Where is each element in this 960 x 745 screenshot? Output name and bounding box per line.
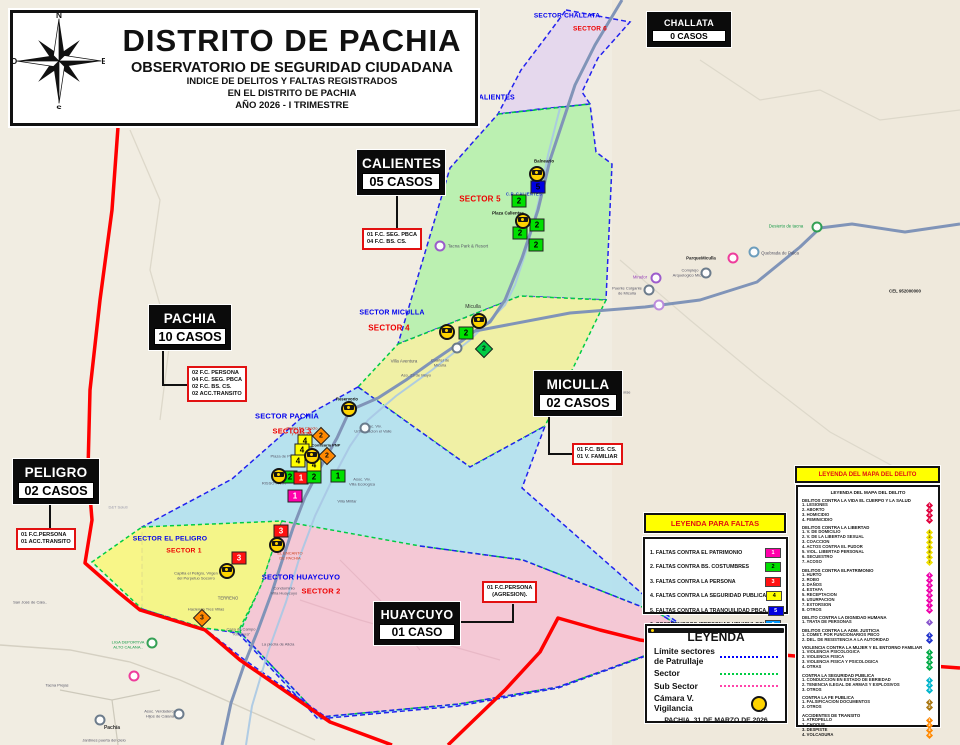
map-label: Pachía: [104, 726, 120, 732]
falta-marker: 2: [307, 471, 322, 484]
legend-main-swatch: [720, 696, 778, 712]
legend-main-swatch: [720, 673, 778, 675]
legend-main-footer: PACHIA, 31 DE MARZO DE 2026: [647, 717, 785, 724]
legend-faltas-label: 3. FALTAS CONTRA LA PERSONA: [650, 579, 736, 585]
legend-line-swatch: [720, 685, 778, 687]
compass-rose: N S E O: [13, 18, 117, 118]
legend-delito-item: 2. OTROS2: [802, 705, 934, 710]
map-label: Casa de Campo "Kiliseera": [227, 627, 256, 636]
area-name: PELIGRO: [18, 464, 94, 482]
delito-marker-number: 2: [316, 431, 327, 442]
legend-delito-diamond-number: 2: [927, 705, 932, 710]
legend-faltas-swatch: 3: [765, 577, 781, 587]
map-label: Capilla el Peligro, Virgen del Perpetuo …: [174, 571, 218, 580]
legend-faltas-label: 1. FALTAS CONTRA EL PATRIMONIO: [650, 550, 742, 556]
pachia-crime-map: BalnearioPlaza CalientesTacna Park & Res…: [0, 0, 960, 745]
map-label: Puente Colgante de Miculla: [612, 286, 642, 295]
surveillance-camera-icon: [304, 448, 320, 464]
map-label: Aso. 23 de Mayo: [401, 374, 431, 379]
area-name: CALIENTES: [362, 155, 440, 173]
area-case-count: 01 CASO: [379, 624, 455, 640]
area-case-count: 10 CASOS: [154, 328, 226, 345]
legend-delito-item: 3. OTROS3: [802, 688, 934, 693]
falta-marker: 2: [530, 219, 545, 232]
stat-box-calientes: CALIENTES05 CASOS: [357, 150, 445, 195]
area-name: HUAYCUYO: [379, 607, 455, 624]
svg-text:O: O: [13, 57, 18, 66]
legend-faltas-item: 4. FALTAS CONTRA LA SEGURIDAD PUBLICA4: [650, 591, 781, 601]
area-case-count: 02 CASOS: [539, 394, 617, 411]
legend-faltas-header: LEYENDA PARA FALTAS: [644, 513, 786, 533]
sector-label: SECTOR EL PELIGRO: [133, 536, 208, 543]
legend-delito-label: 8. OTROS: [802, 608, 822, 613]
legend-delito-diamond-number: 4: [927, 518, 932, 523]
detail-line: 01 ACC.TRANSITO: [21, 539, 71, 546]
legend-delito-diamond: 3: [926, 686, 933, 693]
legend-delito-diamond-number: 8: [927, 608, 932, 613]
stat-box-challata: CHALLATA0 CASOS: [647, 12, 731, 47]
poi-icon: [644, 285, 655, 296]
legend-main-label: Cámara V. Vigilancia: [654, 694, 720, 713]
legend-delito-diamond-number: 3: [927, 688, 932, 693]
miculla-detail: 01 F.C. BS. CS.01 V. FAMILIAR: [572, 443, 623, 465]
legend-delito-item: 2. DEL. DE RESISTENCIA A LA AUTORIDAD2: [802, 638, 934, 643]
map-title: DISTRITO DE PACHIA: [117, 25, 467, 57]
legend-delito-diamond-number: 4: [927, 665, 932, 670]
surveillance-camera-icon: [271, 468, 287, 484]
legend-delito-item: 4. VOLCADURA4: [802, 733, 934, 738]
area-case-count: 02 CASOS: [18, 482, 94, 499]
legend-faltas-item: 5. FALTAS CONTRA LA TRANQUILIDAD PBCA.5: [650, 606, 781, 616]
area-case-count: 05 CASOS: [362, 173, 440, 190]
legend-faltas-swatch: 4: [766, 591, 782, 601]
delito-marker-number: 3: [197, 613, 208, 624]
map-label: Villa Aventura: [391, 358, 418, 363]
map-label: LIGA DEPORTIVA ALTO CALANA..: [112, 640, 145, 649]
legend-delito-diamond: 7: [926, 559, 933, 566]
legend-delito-label: 2. OTROS: [802, 705, 822, 710]
legend-faltas-swatch: 5: [768, 606, 784, 616]
legend-main-item: Límite sectores de Patrullaje: [654, 647, 778, 666]
sector-label: SECTOR CHALLATA: [534, 13, 600, 20]
legend-main-swatch: [720, 656, 778, 658]
legend-line-swatch: [720, 656, 778, 658]
area-name: MICULLA: [539, 376, 617, 394]
legend-delito-item: 7. ACOSO7: [802, 560, 934, 565]
legend-main-item: Sector: [654, 669, 778, 679]
map-label: CEL 952000000: [889, 288, 921, 293]
legend-faltas-label: 5. FALTAS CONTRA LA TRANQUILIDAD PBCA.: [650, 608, 768, 614]
legend-main-item: Cámara V. Vigilancia: [654, 694, 778, 713]
pachia-detail: 02 F.C. PERSONA04 F.C. SEG. PBCA02 F.C. …: [187, 366, 247, 402]
legend-delito-diamond-number: 1: [927, 620, 932, 625]
legend-faltas-swatch: 2: [765, 562, 781, 572]
map-subtitle: OBSERVATORIO DE SEGURIDAD CIUDADANA: [117, 60, 467, 76]
map-label: Cuartel de Miculla: [431, 358, 449, 367]
poi-icon: [728, 253, 739, 264]
falta-marker: 1: [288, 490, 303, 503]
falta-marker: 3: [274, 525, 289, 538]
falta-marker: 2: [512, 195, 527, 208]
detail-line: 01 V. FAMILIAR: [577, 454, 618, 461]
area-case-count: 0 CASOS: [652, 30, 726, 42]
surveillance-camera-icon: [471, 313, 487, 329]
map-label: Miculla: [465, 305, 481, 311]
map-label: La piedra de Alicia: [262, 643, 295, 648]
calientes-detail: 01 F.C. SEG. PBCA04 F.C. BS. CS.: [362, 228, 422, 250]
legend-delito-label: 7. ACOSO: [802, 560, 822, 565]
poi-icon: [812, 222, 823, 233]
detail-line: 04 F.C. BS. CS.: [367, 239, 417, 246]
falta-marker: 2: [459, 327, 474, 340]
legend-faltas-swatch: 1: [765, 548, 781, 558]
poi-icon: [435, 241, 446, 252]
map-label: Jardines puerta del cielo: [82, 739, 125, 744]
legend-main-label: Sub Sector: [654, 682, 720, 692]
svg-text:E: E: [101, 57, 105, 66]
detail-line: 04 F.C. SEG. PBCA: [192, 377, 242, 384]
surveillance-camera-icon: [529, 166, 545, 182]
map-label: Asoc. Verdaderos Hijos de Calana: [144, 709, 176, 718]
peligro-detail: 01 F.C.PERSONA01 ACC.TRANSITO: [16, 528, 76, 550]
map-label: Quebrada de Palca: [761, 250, 799, 255]
poi-icon: [749, 247, 760, 258]
falta-marker: 2: [529, 239, 544, 252]
legend-delito-diamond: 2: [926, 636, 933, 643]
stat-box-peligro: PELIGRO02 CASOS: [13, 459, 99, 504]
legend-delito-item: 8. OTROS8: [802, 608, 934, 613]
map-subline-2: EN EL DISTRITO DE PACHIA: [117, 88, 467, 100]
legend-delito-diamond-number: 7: [927, 560, 932, 565]
surveillance-camera-icon: [219, 563, 235, 579]
sector-label: SECTOR PACHIA: [255, 412, 319, 421]
detail-line: 01 F.C. BS. CS.: [577, 447, 618, 454]
legend-faltas-label: 4. FALTAS CONTRA LA SEGURIDAD PUBLICA: [650, 593, 766, 599]
sector-label: SECTOR 4: [368, 324, 409, 333]
delito-marker-number: 2: [322, 451, 333, 462]
map-subline-1: INDICE DE DELITOS Y FALTAS REGISTRADOS: [117, 76, 467, 88]
map-label: San José de Cala..: [13, 601, 47, 606]
poi-icon: [360, 423, 371, 434]
poi-icon: [174, 709, 185, 720]
legend-delito-diamond: 8: [926, 606, 933, 613]
legend-faltas-label: 2. FALTAS CONTRA BS. COSTUMBRES: [650, 564, 749, 570]
sector-label: SECTOR 1: [166, 548, 201, 555]
sector-label: SECTOR 5: [459, 195, 500, 204]
map-subline-3: AÑO 2026 - I TRIMESTRE: [117, 100, 467, 112]
legend-delito-diamond: 1: [926, 619, 933, 626]
legend-delito-diamond-number: 4: [927, 733, 932, 738]
camera-legend-icon: [751, 696, 767, 712]
falta-marker: 3: [232, 552, 247, 565]
legend-main-box: LEYENDA Límite sectores de PatrullajeSec…: [645, 624, 787, 723]
delito-marker-number: 2: [479, 344, 490, 355]
legend-delito-item: 4. OTRAS4: [802, 665, 934, 670]
poi-icon: [129, 671, 140, 682]
legend-delito-inner-title: LEYENDA DEL MAPA DEL DELITO: [802, 490, 934, 495]
falta-marker: 5: [531, 181, 546, 194]
surveillance-camera-icon: [269, 537, 285, 553]
legend-delito-diamond: 2: [926, 704, 933, 711]
legend-delito-body: LEYENDA DEL MAPA DEL DELITODELITOS CONTR…: [798, 487, 938, 741]
legend-main-items: Límite sectores de PatrullajeSectorSub S…: [647, 647, 785, 713]
map-label: Desierto de tacna: [769, 223, 803, 228]
map-label: Asoc. Viv. Villa Ecologica: [349, 477, 375, 486]
map-label: Mirador: [633, 276, 647, 281]
detail-line: 01 F.C. SEG. PBCA: [367, 232, 417, 239]
poi-icon: [654, 300, 665, 311]
map-label: ParqueMiculla: [686, 255, 716, 260]
legend-delito-diamond: 4: [926, 664, 933, 671]
map-label: EL ENCANTO DE PACHIA: [277, 551, 302, 560]
legend-faltas-item: 1. FALTAS CONTRA EL PATRIMONIO1: [650, 548, 781, 558]
legend-faltas-item: 3. FALTAS CONTRA LA PERSONA3: [650, 577, 781, 587]
legend-faltas-box: 1. FALTAS CONTRA EL PATRIMONIO12. FALTAS…: [643, 537, 788, 614]
legend-delito-diamond-number: 2: [927, 638, 932, 643]
legend-delito-diamond: 4: [926, 731, 933, 738]
surveillance-camera-icon: [515, 213, 531, 229]
map-label: Balneario: [534, 158, 554, 163]
area-name: PACHIA: [154, 310, 226, 328]
map-label: Tacna Prejas: [45, 684, 68, 689]
map-label: Tacna Park & Resort: [448, 243, 488, 248]
sector-label: SECTOR HUAYCUYO: [262, 573, 340, 582]
falta-marker: 1: [331, 470, 346, 483]
legend-delito-diamond: 4: [926, 516, 933, 523]
legend-line-swatch: [720, 673, 778, 675]
detail-line: 01 F.C.PERSONA: [21, 532, 71, 539]
map-label: Condominio Villa Huaycuyo: [271, 586, 297, 595]
svg-text:S: S: [56, 105, 62, 109]
stat-box-pachia: PACHIA10 CASOS: [149, 305, 231, 350]
detail-line: (AGRESION).: [487, 592, 532, 599]
legend-delito-label: 2. DEL. DE RESISTENCIA A LA AUTORIDAD: [802, 638, 889, 643]
legend-delito-box: LEYENDA DEL MAPA DEL DELITODELITOS CONTR…: [796, 485, 940, 727]
sector-label: SECTOR 2: [302, 587, 341, 596]
surveillance-camera-icon: [341, 401, 357, 417]
legend-main-label: Sector: [654, 669, 720, 679]
poi-icon: [651, 273, 662, 284]
legend-delito-label: 4. FEMINICIDIO: [802, 518, 832, 523]
sector-label: SECTOR 6: [573, 26, 607, 33]
map-label: TERRENO: [218, 597, 238, 602]
detail-line: 02 F.C. BS. CS.: [192, 384, 242, 391]
legend-main-swatch: [720, 685, 778, 687]
svg-text:N: N: [56, 13, 62, 20]
stat-box-huaycuyo: HUAYCUYO01 CASO: [374, 602, 460, 645]
sector-label: SECTOR MICULLA: [359, 310, 424, 317]
legend-main-label: Límite sectores de Patrullaje: [654, 647, 720, 666]
legend-main-item: Sub Sector: [654, 682, 778, 692]
legend-delito-label: 1. TRATA DE PERSONAS: [802, 620, 852, 625]
legend-delito-label: 3. OTROS: [802, 688, 822, 693]
map-label: Villa Militar: [337, 500, 356, 505]
map-label: D&T Soluti: [108, 506, 127, 511]
huaycuyo-detail: 01 F.C.PERSONA(AGRESION).: [482, 581, 537, 603]
surveillance-camera-icon: [439, 324, 455, 340]
poi-icon: [147, 638, 158, 649]
detail-line: 01 F.C.PERSONA: [487, 585, 532, 592]
poi-icon: [701, 268, 712, 279]
poi-icon: [452, 343, 463, 354]
legend-delito-label: 4. OTRAS: [802, 665, 821, 670]
detail-line: 02 F.C. PERSONA: [192, 370, 242, 377]
poi-icon: [95, 715, 106, 726]
legend-delito-item: 4. FEMINICIDIO4: [802, 518, 934, 523]
legend-delito-label: 4. VOLCADURA: [802, 733, 833, 738]
detail-line: 02 ACC.TRANSITO: [192, 391, 242, 398]
stat-box-miculla: MICULLA02 CASOS: [534, 371, 622, 416]
title-block: N S E O DISTRITO DE PACHIA OBSERVATORIO …: [10, 10, 478, 126]
area-name: CHALLATA: [652, 17, 726, 30]
legend-faltas-item: 2. FALTAS CONTRA BS. COSTUMBRES2: [650, 562, 781, 572]
legend-delito-header: LEYENDA DEL MAPA DEL DELITO: [795, 466, 940, 483]
legend-delito-item: 1. TRATA DE PERSONAS1: [802, 620, 934, 625]
